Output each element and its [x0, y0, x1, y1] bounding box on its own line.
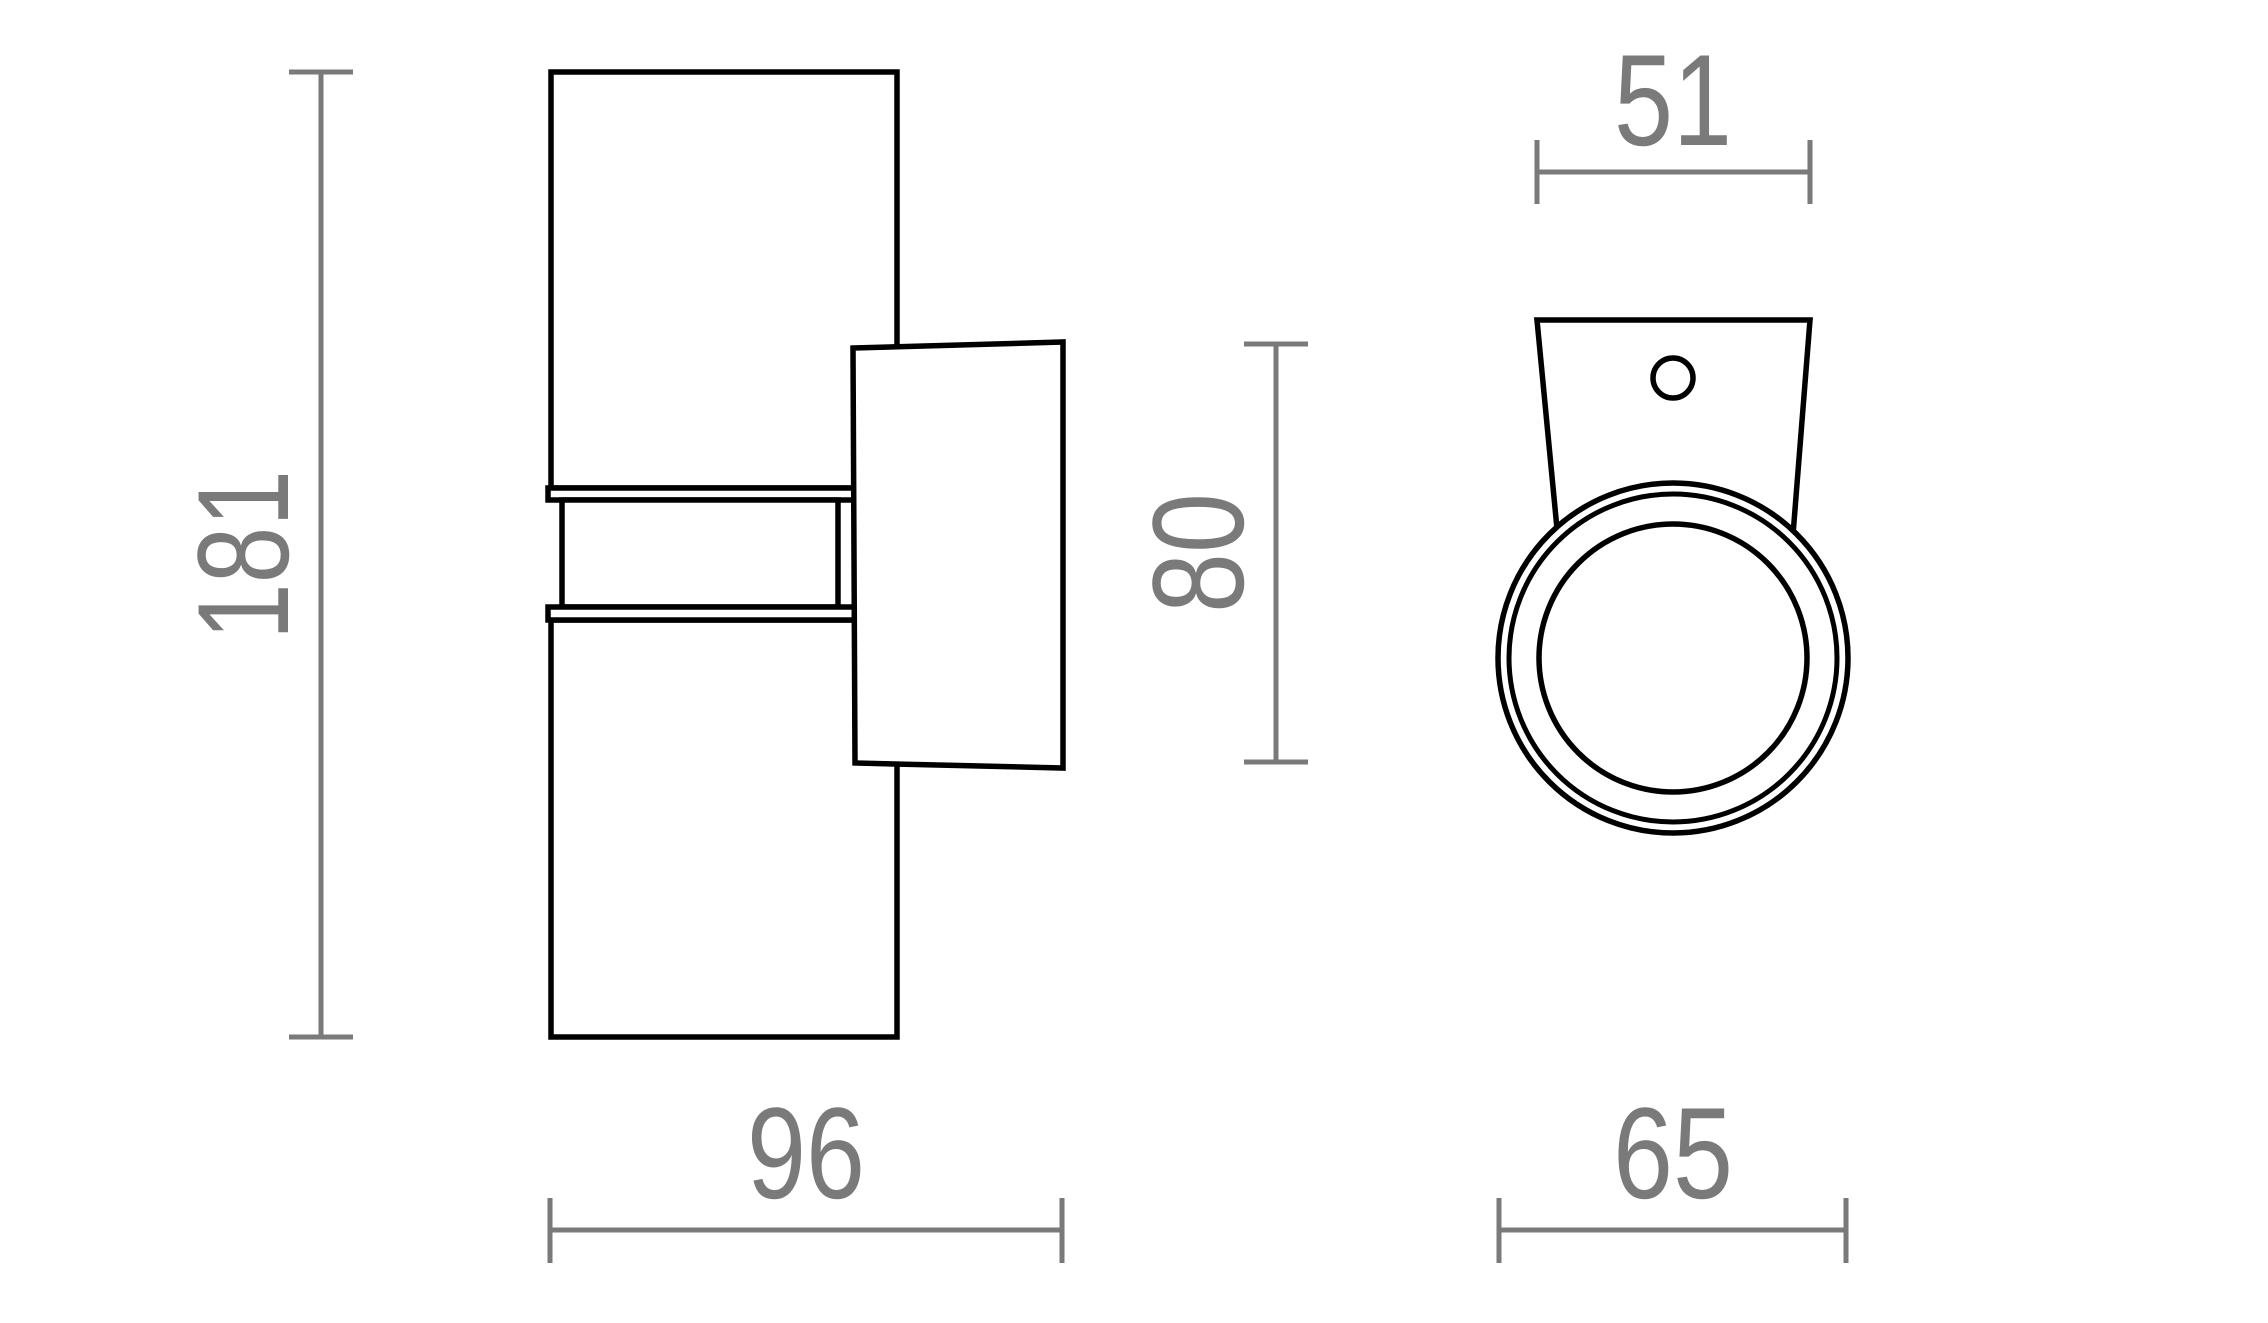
front-view-outer-circle [1498, 483, 1848, 833]
front-view-screw-hole [1653, 358, 1693, 398]
dimension-drawing: 181 96 80 51 65 [0, 0, 2268, 1323]
side-view-upper-cylinder [551, 72, 897, 488]
side-view-lower-cylinder [551, 620, 897, 1037]
front-view [1498, 320, 1848, 833]
side-view-middle-joint [562, 500, 838, 607]
side-view-lower-flange [548, 607, 855, 620]
dim-plate-top-width-label: 51 [1614, 27, 1732, 173]
side-view [548, 72, 1063, 1037]
technical-drawing-canvas: 181 96 80 51 65 [0, 0, 2268, 1323]
side-view-mounting-plate [853, 342, 1063, 768]
dim-depth-label: 96 [747, 1080, 865, 1226]
dim-height-label: 181 [170, 470, 316, 640]
dim-diameter-label: 65 [1613, 1080, 1733, 1226]
dim-plate-height-label: 80 [1125, 493, 1271, 613]
